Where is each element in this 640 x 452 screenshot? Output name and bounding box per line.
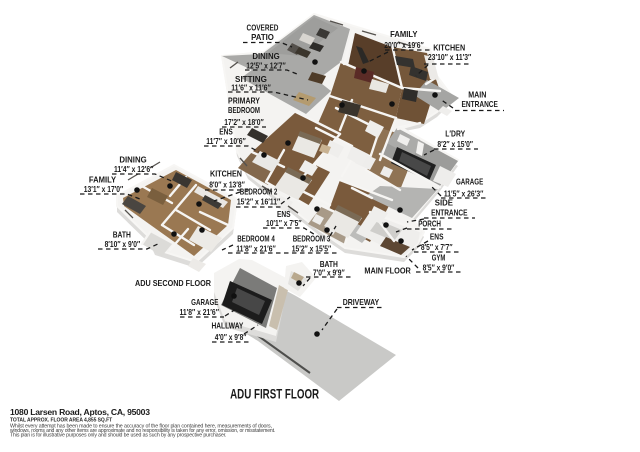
svg-text:8′2″ x 15′0″: 8′2″ x 15′0″ — [437, 139, 473, 149]
svg-text:11′4″ x 12′6″: 11′4″ x 12′6″ — [114, 164, 154, 174]
svg-text:11′8″ x 21′6″: 11′8″ x 21′6″ — [179, 307, 219, 317]
svg-text:ENTRANCE: ENTRANCE — [462, 99, 499, 109]
svg-text:11′8″ x 21′6″: 11′8″ x 21′6″ — [236, 243, 276, 253]
svg-text:PATIO: PATIO — [251, 32, 274, 42]
svg-text:PORCH: PORCH — [418, 218, 441, 228]
svg-text:10′1″ x 7′5″: 10′1″ x 7′5″ — [266, 218, 302, 228]
svg-text:ADU FIRST FLOOR: ADU FIRST FLOOR — [230, 386, 319, 402]
svg-text:23′10″ x 11′3″: 23′10″ x 11′3″ — [428, 52, 471, 62]
svg-text:HALLWAY: HALLWAY — [211, 320, 243, 330]
svg-text:1080 Larsen Road, Aptos, CA, 9: 1080 Larsen Road, Aptos, CA, 95003 — [10, 407, 150, 417]
svg-text:GYM: GYM — [432, 252, 446, 262]
svg-text:ENS: ENS — [430, 231, 444, 241]
svg-text:15′2″ x 16′11″: 15′2″ x 16′11″ — [237, 196, 280, 206]
svg-text:MAIN FLOOR: MAIN FLOOR — [364, 265, 411, 275]
svg-text:COVERED: COVERED — [247, 22, 279, 32]
svg-text:BEDROOM 2: BEDROOM 2 — [240, 187, 278, 197]
svg-text:7′0″ x 9′9″: 7′0″ x 9′9″ — [313, 267, 345, 277]
svg-text:15′2″ x 15′5″: 15′2″ x 15′5″ — [292, 243, 332, 253]
svg-text:ADU SECOND FLOOR: ADU SECOND FLOOR — [135, 278, 212, 288]
svg-text:13′1″ x 17′0″: 13′1″ x 17′0″ — [84, 184, 124, 194]
svg-text:BEDROOM 3: BEDROOM 3 — [293, 234, 331, 244]
svg-text:11′7″ x 10′6″: 11′7″ x 10′6″ — [206, 136, 246, 146]
svg-text:FAMILY: FAMILY — [390, 29, 418, 39]
svg-text:MAIN: MAIN — [468, 89, 486, 99]
svg-text:PRIMARY: PRIMARY — [228, 96, 260, 106]
svg-text:ENS: ENS — [219, 126, 233, 136]
svg-text:This plan is for illustrative: This plan is for illustrative purposes o… — [10, 432, 226, 438]
svg-text:KITCHEN: KITCHEN — [433, 43, 465, 53]
svg-text:8′5″ x 7′7″: 8′5″ x 7′7″ — [421, 242, 453, 252]
svg-text:FAMILY: FAMILY — [89, 175, 117, 185]
svg-text:8′10″ x 9′0″: 8′10″ x 9′0″ — [105, 239, 141, 249]
svg-text:DRIVEWAY: DRIVEWAY — [343, 297, 380, 307]
svg-text:BEDROOM 4: BEDROOM 4 — [237, 234, 275, 244]
svg-text:TOTAL APPROX. FLOOR AREA 4,855: TOTAL APPROX. FLOOR AREA 4,855 SQ.FT — [10, 417, 112, 423]
svg-text:GARAGE: GARAGE — [456, 177, 484, 187]
svg-text:20′0″ x 19′6″: 20′0″ x 19′6″ — [384, 40, 424, 50]
svg-text:BATH: BATH — [113, 229, 131, 239]
svg-text:12′5″ x 12′7″: 12′5″ x 12′7″ — [246, 60, 286, 70]
svg-text:BEDROOM: BEDROOM — [228, 105, 260, 115]
svg-text:11′6″ x 11′6″: 11′6″ x 11′6″ — [231, 82, 271, 92]
svg-text:KITCHEN: KITCHEN — [210, 168, 242, 178]
svg-text:8′5″ x 9′0″: 8′5″ x 9′0″ — [423, 263, 455, 273]
svg-text:DINING: DINING — [119, 155, 146, 165]
svg-text:4′0″ x 9′8″: 4′0″ x 9′8″ — [215, 332, 247, 342]
svg-text:GARAGE: GARAGE — [191, 297, 219, 307]
svg-text:ENTRANCE: ENTRANCE — [431, 208, 468, 218]
svg-text:SIDE: SIDE — [435, 197, 454, 207]
svg-text:L′DRY: L′DRY — [445, 129, 465, 139]
